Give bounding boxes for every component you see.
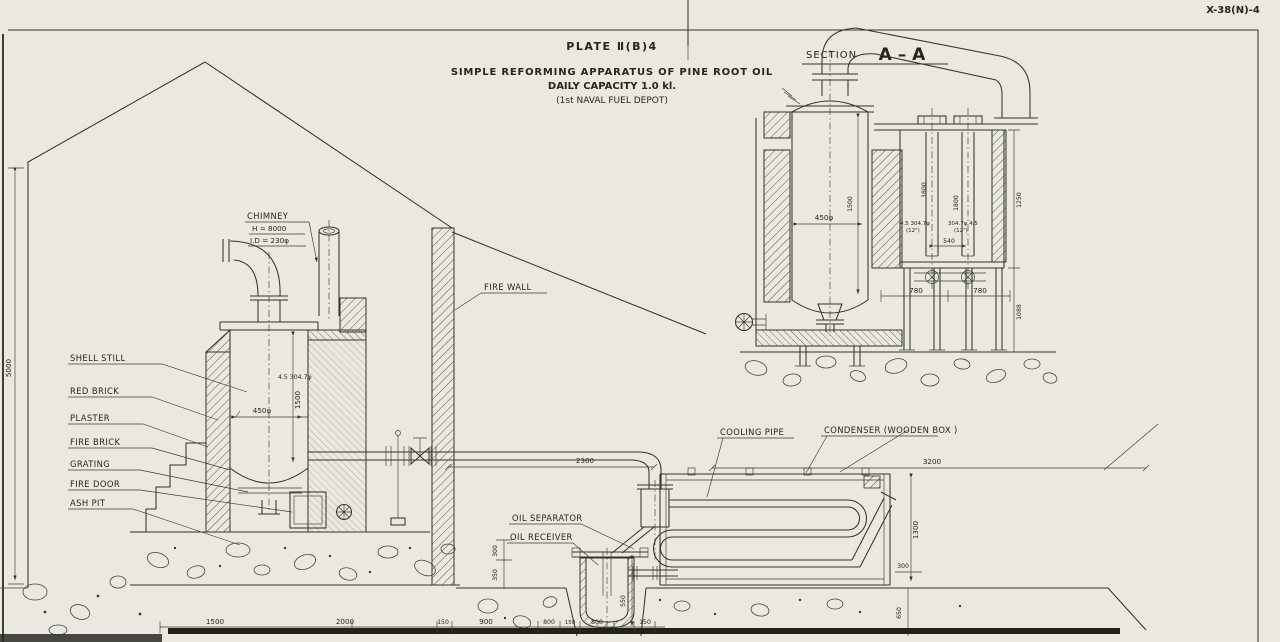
dim-3200: 3200 [923, 457, 942, 466]
section-still-drawing [782, 50, 874, 336]
dim-5000: 5000 [4, 358, 13, 377]
dim-bottom-800a: 800 [543, 619, 555, 626]
chimney-label: CHIMNEY [247, 211, 289, 221]
dim-1300: 1300 [911, 520, 920, 539]
oil-separator-label: OIL SEPARATOR [512, 513, 583, 523]
section-title: SECTION [806, 50, 857, 61]
dim-300-right: 300 [897, 563, 909, 570]
blueprint-svg: X-38(N)-4 PLATE Ⅱ(B)4 SIMPLE REFORMING A… [0, 0, 1280, 642]
grating-label: GRATING [70, 459, 110, 469]
dim-still-height: 1500 [293, 390, 302, 409]
section-furnace-walls [756, 112, 902, 346]
dim-bottom-1500: 1500 [206, 617, 225, 626]
dim-650: 650 [896, 607, 903, 619]
drawing-depot: (1st NAVAL FUEL DEPOT) [556, 96, 668, 106]
cooling-pipe-label: COOLING PIPE [720, 427, 784, 437]
section-view: 450φ 1500 1800 1800 4.5 304.7φ (12") 304… [736, 28, 1059, 387]
ash-pit-label: ASH PIT [70, 498, 106, 508]
gauge-rod-drawing [391, 431, 405, 526]
sec-dim-1800b: 1800 [953, 195, 960, 211]
red-brick-label: RED BRICK [70, 386, 119, 396]
dim-bottom-800b: 800 [591, 619, 603, 626]
section-name: A – A [879, 45, 926, 65]
fire-door-label: FIRE DOOR [70, 479, 120, 489]
sec-dim-pipe-a: 4.5 304.7φ [900, 221, 930, 227]
chimney-height-label: H = 8000 [252, 224, 287, 233]
fire-brick-label: FIRE BRICK [70, 437, 121, 447]
dim-bottom-900: 900 [479, 617, 493, 626]
section-duct-drawing [812, 28, 1038, 124]
dim-still-dia: 450φ [253, 406, 272, 415]
fire-wall-drawing [432, 228, 454, 585]
building-height-dim: 5000 [4, 168, 24, 584]
plate-number: PLATE Ⅱ(B)4 [566, 40, 657, 53]
pit-dims: 300 350 [492, 540, 512, 588]
dim-bottom-150b: 150 [565, 620, 576, 626]
sec-dim-780b: 780 [973, 286, 987, 295]
drawing-title: SIMPLE REFORMING APPARATUS OF PINE ROOT … [451, 67, 773, 78]
dim-pit-300: 300 [492, 545, 499, 557]
oil-receiver-label: OIL RECEIVER [510, 532, 573, 542]
sec-dim-1800a: 1800 [921, 182, 928, 198]
oil-receiver-drawing: 550 [566, 548, 648, 636]
dim-bottom-150a: 150 [437, 619, 449, 626]
dim-2300: 2300 [576, 456, 595, 465]
dim-bottom-2000: 2000 [336, 617, 355, 626]
doc-number: X-38(N)-4 [1206, 5, 1260, 16]
dim-pit-350: 350 [492, 569, 499, 581]
dim-bottom-150c: 150 [639, 619, 651, 626]
sec-dim-450: 450φ [815, 213, 834, 222]
fire-wall-label: FIRE WALL [484, 282, 532, 292]
cooling-coil-drawing [654, 492, 897, 567]
dim-550: 550 [620, 595, 627, 607]
sec-dim-1250: 1250 [1016, 192, 1023, 208]
soil-dots [44, 547, 962, 619]
dim-still-pipe: 4.5 304.7φ [278, 374, 312, 381]
sec-dim-540: 540 [943, 238, 955, 245]
elevation-labels: SHELL STILL RED BRICK PLASTER FIRE BRICK… [68, 353, 292, 545]
sec-dim-pipe-a-in: (12") [906, 228, 920, 234]
sec-dim-pipe-b-in: (12") [954, 228, 968, 234]
sec-dim-1088: 1088 [1016, 304, 1023, 320]
drawing-capacity: DAILY CAPACITY 1.0 kl. [548, 81, 676, 92]
shell-still-label: SHELL STILL [70, 353, 126, 363]
valve-drawing [404, 438, 436, 466]
sec-dim-pipe-b: 304.7φ 4.5 [948, 221, 978, 227]
vapor-run-dim: 2300 [445, 456, 657, 470]
sec-dim-780a: 780 [909, 286, 923, 295]
fire-wall-label-group: FIRE WALL [455, 282, 547, 310]
chimney-label-group: CHIMNEY H = 8000 I.D = 230φ [245, 211, 317, 262]
chimney-id-label: I.D = 230φ [250, 236, 289, 245]
sec-dim-1500: 1500 [847, 196, 854, 212]
pipe-labels: COOLING PIPE CONDENSER (WOODEN BOX ) [707, 425, 958, 497]
condenser-label: CONDENSER (WOODEN BOX ) [824, 425, 958, 435]
still-dims: 4.5 304.7φ 1500 450φ [230, 336, 312, 462]
condenser-right-dims: 1300 300 650 [895, 478, 922, 636]
section-rubble [744, 356, 1058, 387]
section-handwheel-drawing [736, 314, 767, 331]
drawing-sheet: X-38(N)-4 PLATE Ⅱ(B)4 SIMPLE REFORMING A… [0, 0, 1280, 642]
plaster-label: PLASTER [70, 413, 110, 423]
chimney-drawing [319, 220, 339, 320]
ground-lines [0, 532, 1146, 630]
